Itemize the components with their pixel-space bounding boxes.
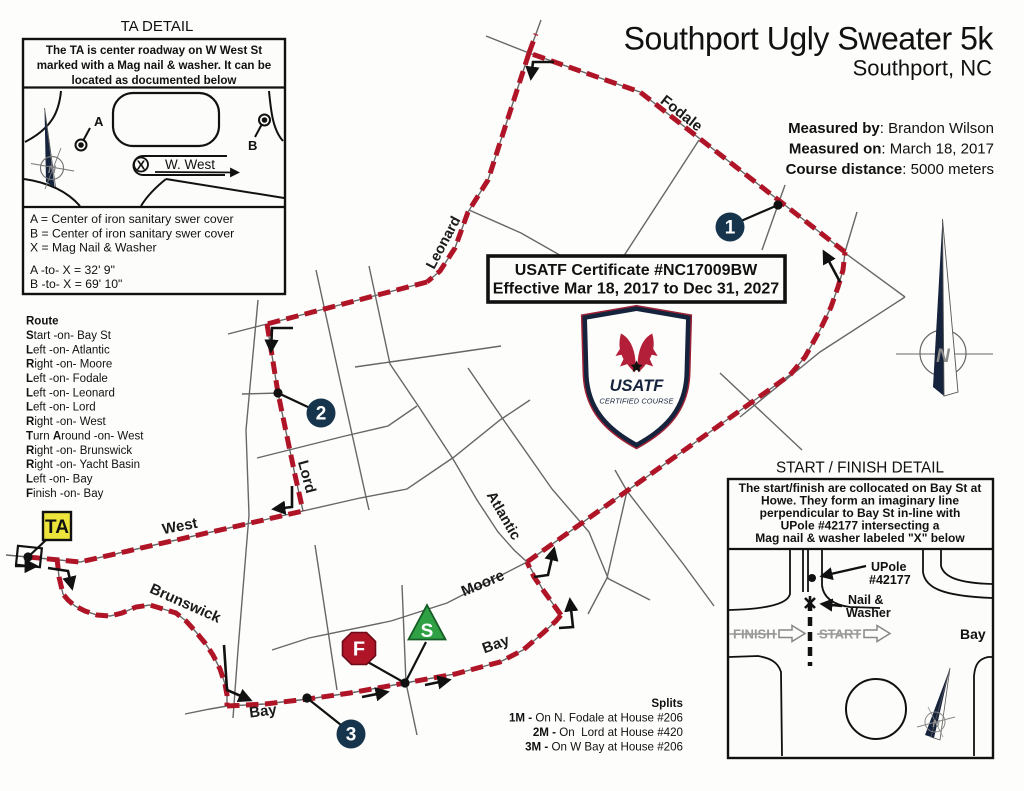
svg-text:Course distance: 5000 meters: Course distance: 5000 meters — [786, 161, 994, 178]
svg-text:Nail &: Nail & — [848, 593, 883, 607]
svg-text:B -to- X = 69' 10": B -to- X = 69' 10" — [30, 277, 122, 291]
svg-text:B = Center of iron sanitary sw: B = Center of iron sanitary swer cover — [30, 227, 234, 241]
svg-text:Splits: Splits — [651, 697, 683, 710]
svg-text:Finish -on- Bay: Finish -on- Bay — [26, 488, 104, 500]
svg-text:marked with a Mag nail & washe: marked with a Mag nail & washer. It can … — [37, 59, 272, 72]
svg-text:Start -on- Bay St: Start -on- Bay St — [26, 330, 112, 342]
svg-text:1M - On N. Fodale at House #20: 1M - On N. Fodale at House #206 — [509, 712, 683, 725]
svg-text:3: 3 — [346, 725, 357, 746]
svg-text:TA DETAIL: TA DETAIL — [121, 18, 194, 35]
svg-text:Route: Route — [26, 316, 59, 328]
svg-text:1: 1 — [725, 218, 736, 239]
svg-text:Southport, NC: Southport, NC — [853, 56, 993, 81]
svg-text:X = Mag Nail & Washer: X = Mag Nail & Washer — [30, 241, 157, 255]
svg-text:Right -on- Yacht Basin: Right -on- Yacht Basin — [26, 459, 140, 471]
svg-text:USATF: USATF — [610, 377, 665, 395]
svg-text:The TA is center roadway on W: The TA is center roadway on W West St — [46, 44, 262, 57]
svg-text:Measured on: March 18, 2017: Measured on: March 18, 2017 — [789, 141, 994, 158]
svg-text:Right -on- West: Right -on- West — [26, 416, 106, 428]
svg-text:2M - On Lord at House #420: 2M - On Lord at House #420 — [533, 726, 683, 739]
svg-text:W. West: W. West — [165, 157, 215, 172]
svg-text:X: X — [137, 158, 146, 173]
svg-text:N: N — [48, 164, 57, 176]
svg-text:Washer: Washer — [846, 606, 891, 620]
svg-text:Bay: Bay — [248, 701, 278, 721]
svg-text:Left -on- Bay: Left -on- Bay — [26, 474, 93, 486]
svg-text:B: B — [248, 138, 257, 153]
svg-text:N: N — [936, 346, 951, 367]
svg-text:Southport Ugly Sweater 5k: Southport Ugly Sweater 5k — [624, 21, 995, 57]
svg-text:Turn Around -on- West: Turn Around -on- West — [26, 430, 144, 442]
svg-text:CERTIFIED COURSE: CERTIFIED COURSE — [599, 397, 673, 406]
svg-text:3M - On W Bay at House #206: 3M - On W Bay at House #206 — [525, 741, 683, 754]
svg-text:TA: TA — [45, 517, 69, 538]
svg-text:Effective Mar 18, 2017 to Dec: Effective Mar 18, 2017 to Dec 31, 2027 — [493, 281, 779, 298]
svg-text:Right -on- Moore: Right -on- Moore — [26, 359, 112, 371]
svg-text:Mag nail & washer labeled "X": Mag nail & washer labeled "X" below — [755, 531, 965, 545]
svg-text:S: S — [421, 621, 434, 642]
svg-text:Measured by: Brandon Wilson: Measured by: Brandon Wilson — [788, 120, 994, 137]
svg-text:#42177: #42177 — [869, 573, 911, 587]
svg-text:Left -on- Fodale: Left -on- Fodale — [26, 373, 108, 385]
svg-text:UPole: UPole — [871, 560, 906, 574]
svg-text:located as documented below: located as documented below — [72, 74, 238, 87]
svg-text:Left -on- Lord: Left -on- Lord — [26, 402, 96, 414]
svg-text:Right -on- Brunswick: Right -on- Brunswick — [26, 445, 132, 457]
svg-text:START / FINISH DETAIL: START / FINISH DETAIL — [776, 460, 944, 477]
svg-text:Bay: Bay — [960, 626, 986, 642]
svg-text:USATF Certificate #NC17009BW: USATF Certificate #NC17009BW — [515, 262, 758, 279]
svg-text:A: A — [94, 114, 104, 129]
svg-text:F: F — [353, 639, 365, 661]
svg-text:A = Center of iron sanitary sw: A = Center of iron sanitary swer cover — [30, 212, 234, 226]
svg-text:N: N — [932, 719, 940, 730]
svg-text:Left -on- Leonard: Left -on- Leonard — [26, 387, 115, 399]
svg-text:A -to- X = 32' 9": A -to- X = 32' 9" — [30, 263, 115, 277]
svg-text:Left -on- Atlantic: Left -on- Atlantic — [26, 344, 110, 356]
svg-text:2: 2 — [316, 404, 327, 425]
